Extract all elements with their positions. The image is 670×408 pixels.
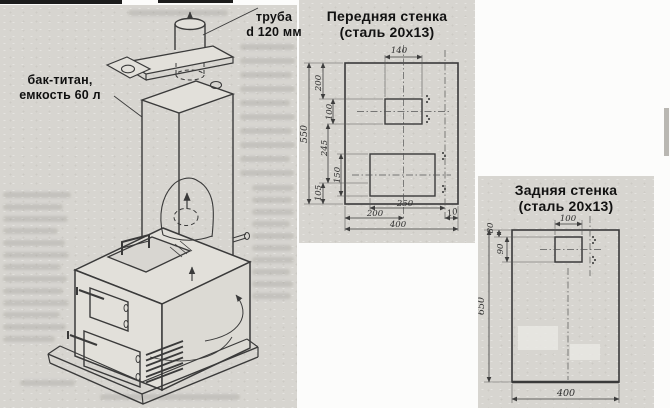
scan-artifact-strip-left <box>0 0 122 4</box>
tank-callout-line1: бак-титан, <box>4 73 116 88</box>
front-wall-title: Передняя стенка (сталь 20х13) <box>299 8 475 40</box>
back-wall-outline <box>512 230 619 382</box>
front-wall-title-line2: (сталь 20х13) <box>299 24 475 40</box>
dim-80: 80 <box>486 222 496 233</box>
scan-erase-patch <box>570 344 600 360</box>
dim-550: 550 <box>299 125 310 143</box>
dim-105: 105 <box>314 185 324 201</box>
scanned-diagram-page: труба d 120 мм бак-титан, емкость 60 л П… <box>0 0 670 408</box>
scan-artifact-strip-mid <box>158 0 233 3</box>
stove-drawing <box>0 5 297 408</box>
front-wall-title-line1: Передняя стенка <box>299 8 475 24</box>
pipe-through-stones-dashed <box>174 209 198 226</box>
dim-650: 650 <box>478 297 487 315</box>
back-wall-title: Задняя стенка (сталь 20х13) <box>478 182 654 214</box>
dim-140: 140 <box>391 46 408 56</box>
tank-callout-line2: емкость 60 л <box>4 88 116 103</box>
tank-leader-line <box>114 96 142 117</box>
hole-markers <box>426 95 446 193</box>
mounting-plate <box>107 46 233 80</box>
dim-90: 90 <box>496 243 506 254</box>
dim-100: 100 <box>560 214 577 224</box>
dim-100: 100 <box>325 103 335 120</box>
water-tank <box>142 81 233 257</box>
dim-200-left: 200 <box>314 74 324 92</box>
scan-erase-patch <box>518 326 558 350</box>
page-edge-artifact <box>664 108 669 156</box>
center-lines <box>352 45 451 220</box>
back-wall-title-line1: Задняя стенка <box>478 182 654 198</box>
back-wall-panel: Задняя стенка (сталь 20х13) <box>478 176 654 408</box>
tank-callout: бак-титан, емкость 60 л <box>4 73 116 103</box>
dim-400: 400 <box>556 388 575 399</box>
dim-245: 245 <box>320 140 330 157</box>
dim-200-bottom: 200 <box>366 209 384 219</box>
dim-400: 400 <box>389 220 407 230</box>
back-wall-title-line2: (сталь 20х13) <box>478 198 654 214</box>
stove-isometric-figure: труба d 120 мм бак-титан, емкость 60 л <box>0 5 297 408</box>
dim-250: 250 <box>396 199 414 209</box>
front-wall-panel: Передняя стенка (сталь 20х13) <box>299 0 475 243</box>
dim-10: 10 <box>446 207 460 220</box>
hole-markers <box>592 236 596 264</box>
dim-150: 150 <box>333 166 343 183</box>
chimney-pipe <box>175 12 205 50</box>
